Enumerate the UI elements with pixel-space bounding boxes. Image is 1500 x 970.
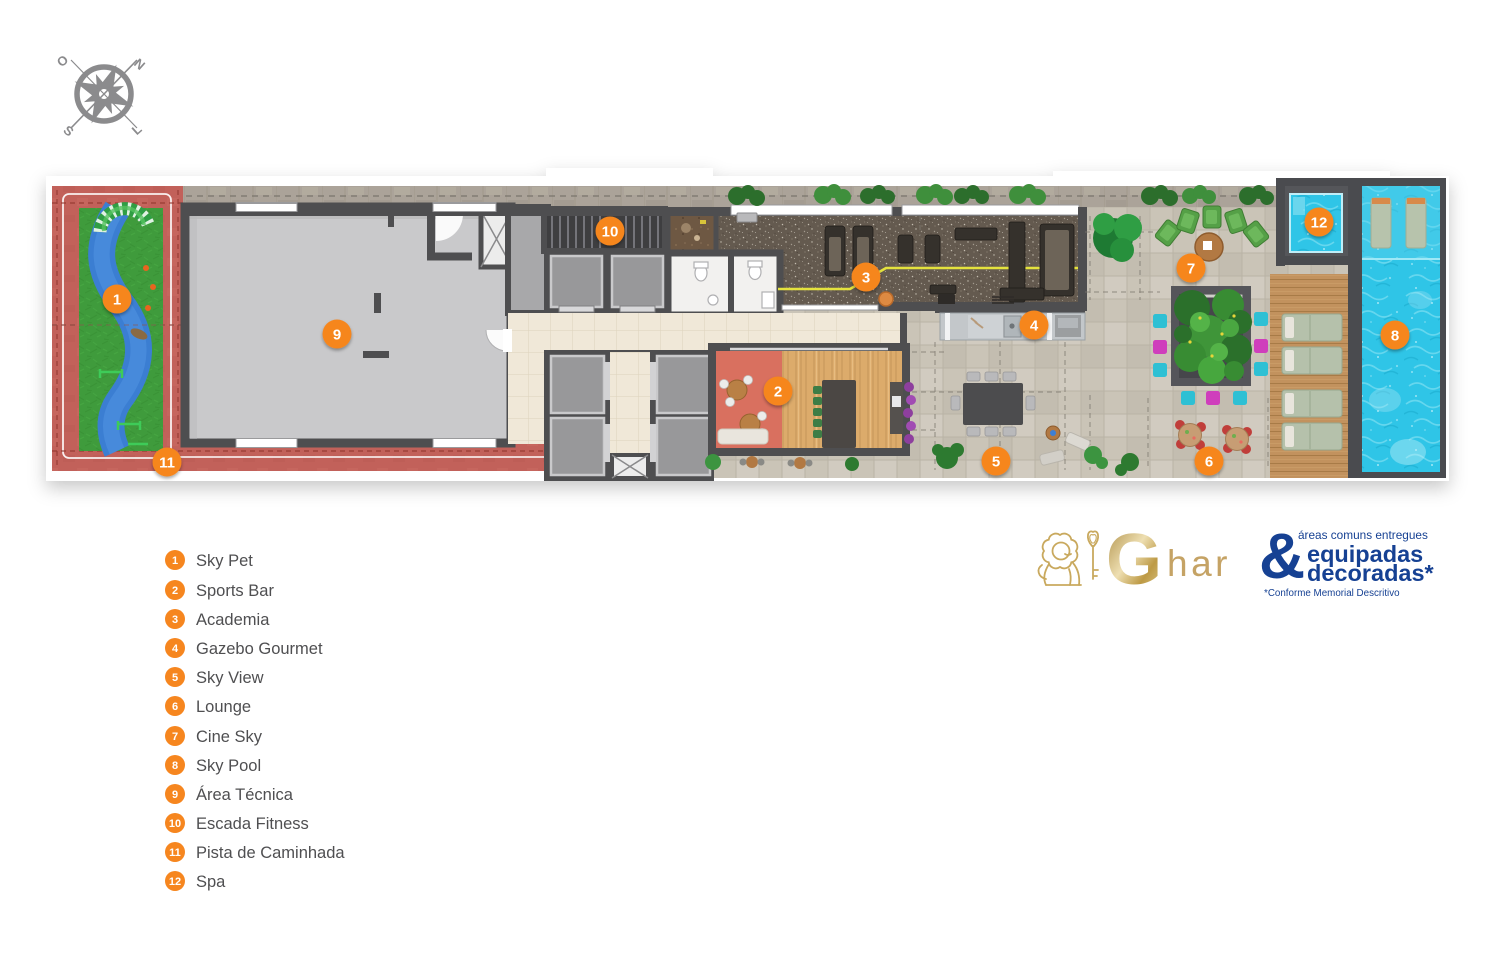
svg-text:3: 3 xyxy=(862,270,870,287)
svg-text:11: 11 xyxy=(159,455,175,472)
svg-text:Academia: Academia xyxy=(196,611,270,629)
svg-text:Lounge: Lounge xyxy=(196,698,251,716)
svg-text:1: 1 xyxy=(113,292,121,309)
svg-text:1: 1 xyxy=(172,555,178,567)
svg-text:Spa: Spa xyxy=(196,873,226,891)
svg-text:12: 12 xyxy=(169,876,181,888)
svg-text:Sky Pet: Sky Pet xyxy=(196,552,253,570)
svg-text:10: 10 xyxy=(602,224,619,241)
svg-text:Cine Sky: Cine Sky xyxy=(196,728,263,746)
svg-text:7: 7 xyxy=(172,731,178,743)
svg-text:6: 6 xyxy=(172,701,178,713)
svg-text:har: har xyxy=(1167,543,1231,584)
svg-text:8: 8 xyxy=(172,760,178,772)
svg-text:4: 4 xyxy=(1030,318,1039,335)
svg-text:10: 10 xyxy=(169,818,181,830)
svg-text:8: 8 xyxy=(1391,328,1399,345)
svg-text:Sky Pool: Sky Pool xyxy=(196,757,261,775)
svg-text:decoradas*: decoradas* xyxy=(1307,560,1435,586)
svg-text:3: 3 xyxy=(172,614,178,626)
svg-text:Área Técnica: Área Técnica xyxy=(196,785,294,804)
svg-text:6: 6 xyxy=(1205,454,1213,471)
svg-text:áreas comuns entregues: áreas comuns entregues xyxy=(1298,528,1428,542)
svg-text:12: 12 xyxy=(1311,215,1328,232)
svg-text:5: 5 xyxy=(992,454,1000,471)
svg-text:*Conforme Memorial Descritivo: *Conforme Memorial Descritivo xyxy=(1264,588,1400,599)
svg-text:11: 11 xyxy=(169,847,181,859)
svg-text:Sky View: Sky View xyxy=(196,669,264,687)
svg-text:G: G xyxy=(1106,520,1162,600)
svg-text:Gazebo Gourmet: Gazebo Gourmet xyxy=(196,640,323,658)
svg-text:Pista de Caminhada: Pista de Caminhada xyxy=(196,844,345,862)
svg-text:5: 5 xyxy=(172,672,178,684)
svg-text:4: 4 xyxy=(172,643,179,655)
svg-text:2: 2 xyxy=(172,585,178,597)
svg-text:Escada Fitness: Escada Fitness xyxy=(196,815,309,833)
svg-text:9: 9 xyxy=(172,789,178,801)
svg-text:9: 9 xyxy=(333,327,341,344)
svg-text:7: 7 xyxy=(1187,261,1195,278)
svg-text:2: 2 xyxy=(774,384,782,401)
svg-text:Sports Bar: Sports Bar xyxy=(196,582,274,600)
